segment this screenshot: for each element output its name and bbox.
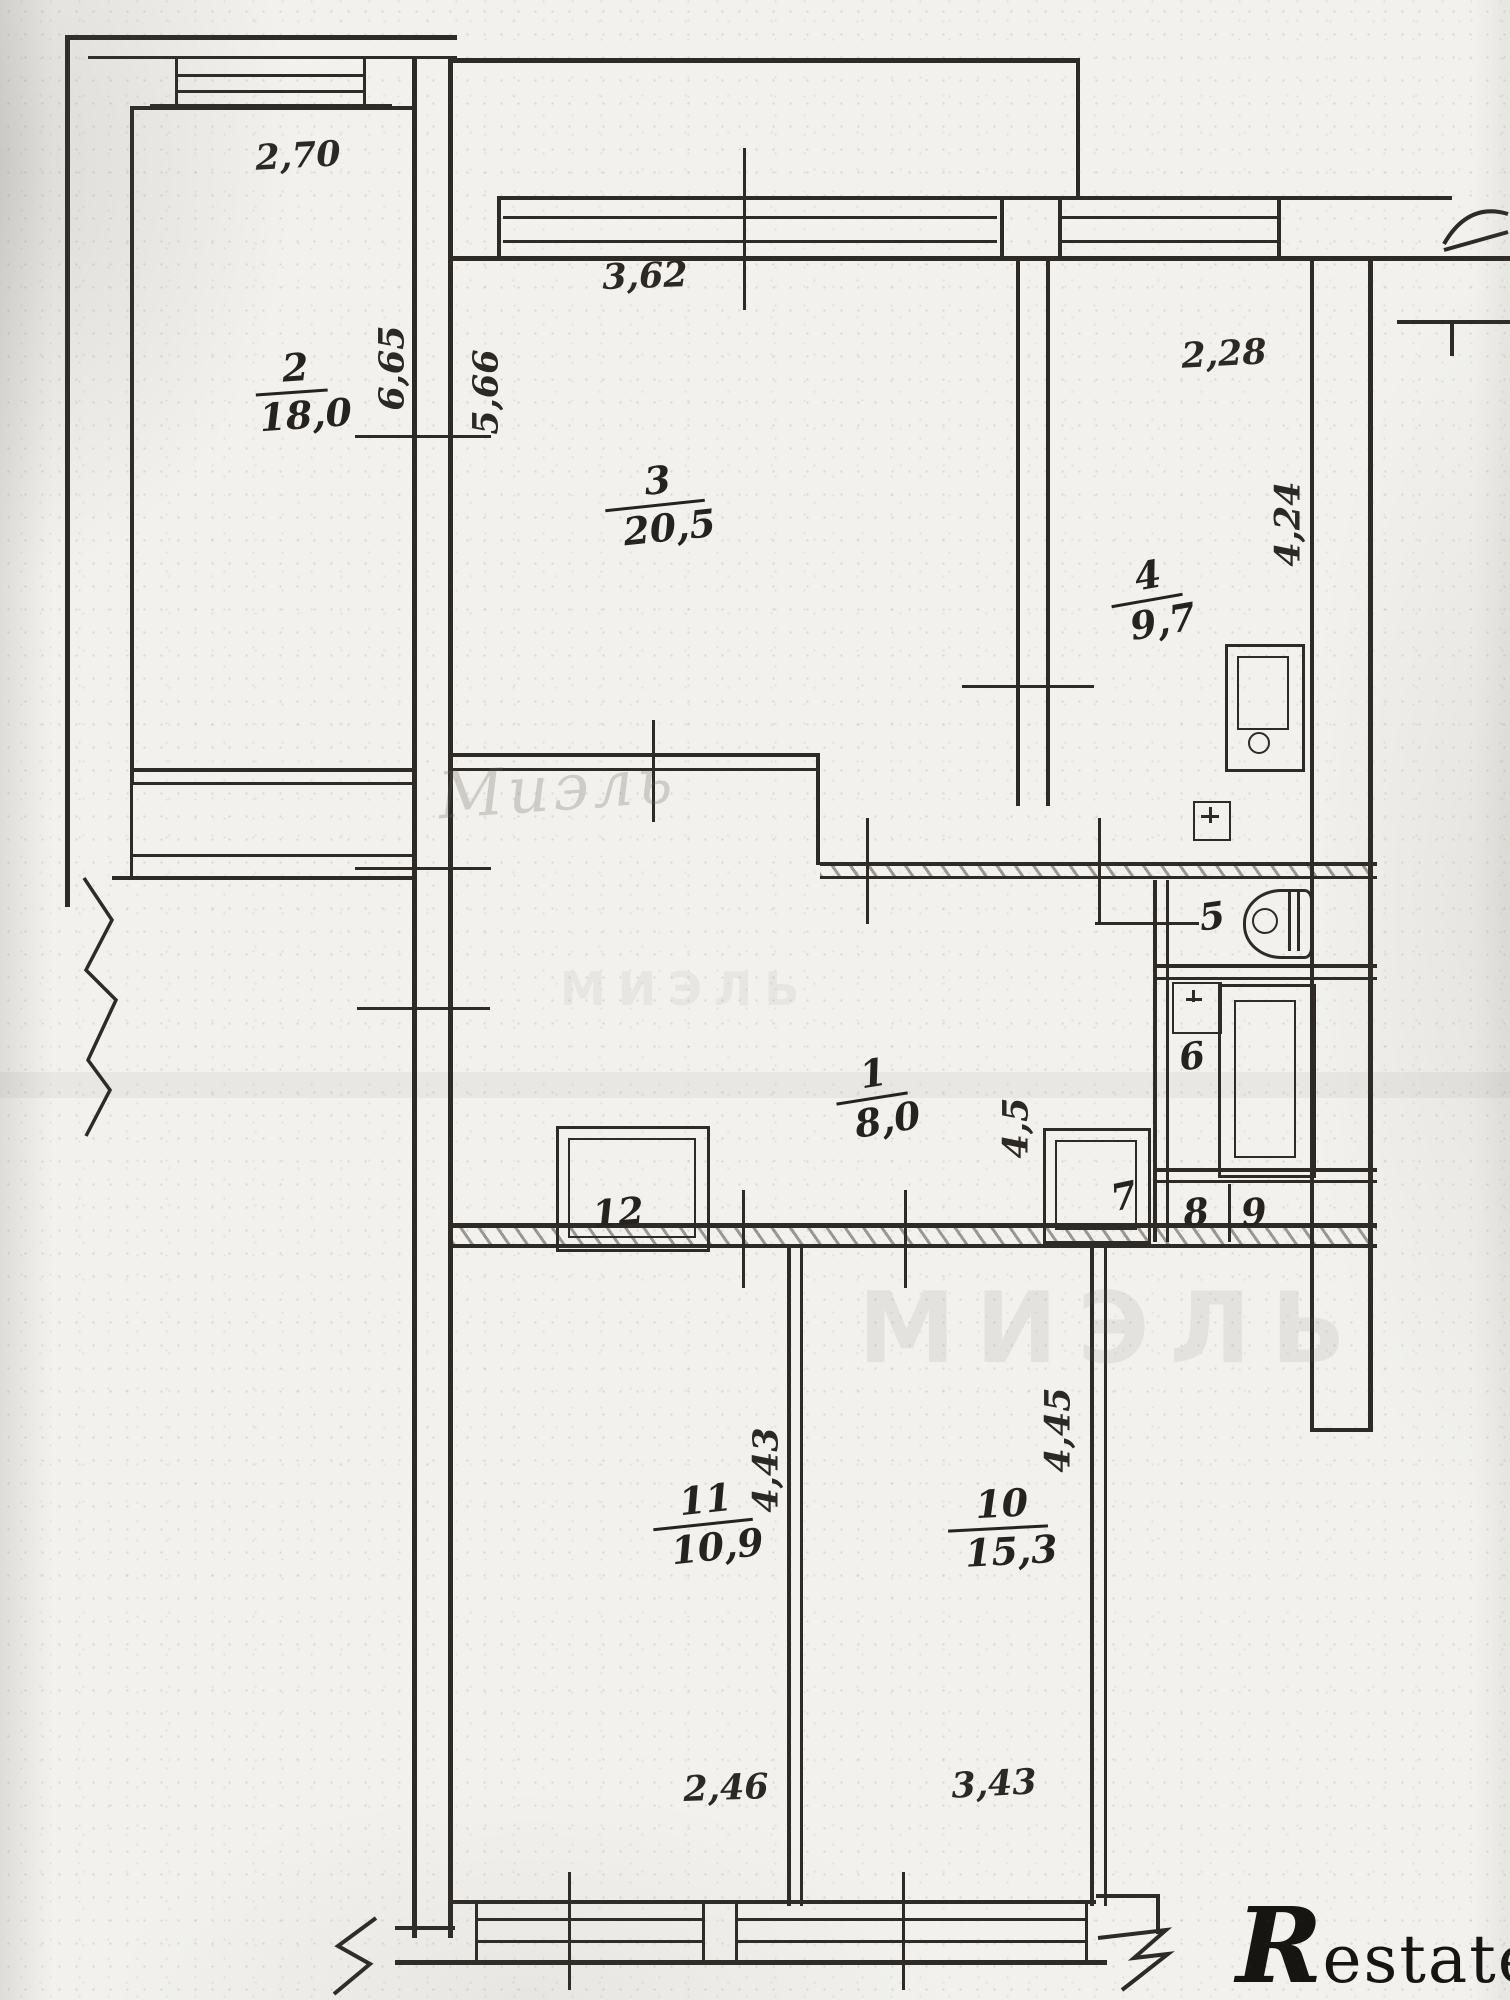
wall bbox=[1156, 1180, 1377, 1183]
door-axis-tick bbox=[1098, 818, 1101, 924]
door-axis-tick bbox=[902, 1872, 905, 1990]
dim-room10-length: 4,45 bbox=[1038, 1387, 1079, 1472]
window-frame bbox=[175, 56, 178, 108]
wall bbox=[130, 768, 414, 772]
entrance-arrow bbox=[1442, 192, 1510, 264]
wall bbox=[1166, 880, 1169, 1242]
wall bbox=[1076, 58, 1080, 198]
dim-room4-length: 4,24 bbox=[1268, 481, 1309, 566]
wall bbox=[787, 1248, 791, 1906]
watermark-block-small: МИЭЛЬ bbox=[560, 962, 811, 1016]
wall bbox=[1153, 880, 1157, 1242]
room-label-9: 9 bbox=[1239, 1189, 1269, 1235]
dim-room11-length: 4,43 bbox=[746, 1427, 787, 1512]
wall bbox=[1310, 260, 1314, 1432]
dim-room3-width: 3,62 bbox=[602, 254, 689, 298]
wall bbox=[497, 196, 1281, 200]
window-pier bbox=[1000, 196, 1004, 260]
dim-room10-width: 3,43 bbox=[950, 1761, 1037, 1806]
bathtub-icon bbox=[1234, 1000, 1296, 1158]
window-frame bbox=[363, 56, 366, 108]
window-glass-line bbox=[177, 74, 365, 77]
window-glass-line bbox=[735, 1918, 1085, 1921]
door-axis-tick bbox=[568, 1872, 571, 1990]
wall bbox=[130, 106, 414, 110]
door-axis-tick bbox=[743, 148, 746, 310]
dim-room11-width: 2,46 bbox=[683, 1766, 770, 1810]
room-area: 10,9 bbox=[666, 1522, 769, 1570]
room-number: 1 bbox=[835, 1049, 912, 1098]
window-frame bbox=[475, 1900, 478, 1962]
room-number: 11 bbox=[654, 1475, 757, 1523]
window-pier bbox=[1058, 196, 1062, 260]
room-label-3: 3 20,5 bbox=[601, 457, 709, 553]
dim-hall-side: 4,5 bbox=[996, 1098, 1037, 1159]
door-axis-tick bbox=[742, 1190, 745, 1288]
window-frame bbox=[702, 1900, 705, 1962]
watermark-block: МИЭЛЬ bbox=[858, 1272, 1366, 1386]
toilet-icon bbox=[1288, 891, 1291, 951]
room-area: 9,7 bbox=[1124, 597, 1202, 647]
break-line bbox=[76, 878, 142, 1136]
wall bbox=[130, 782, 414, 785]
watermark-script: Миэль bbox=[436, 744, 679, 834]
wall bbox=[65, 35, 70, 907]
door-axis-tick bbox=[1095, 922, 1199, 925]
break-line bbox=[328, 1916, 390, 1996]
wall bbox=[1046, 260, 1050, 806]
vent-box-icon bbox=[1193, 801, 1231, 841]
wall bbox=[452, 1244, 1377, 1248]
window-frame bbox=[1085, 1900, 1088, 1962]
wall bbox=[1281, 196, 1452, 200]
wall bbox=[395, 1926, 455, 1930]
wall bbox=[450, 58, 1080, 63]
room-area: 20,5 bbox=[618, 503, 721, 551]
window-frame bbox=[497, 196, 501, 260]
wall bbox=[1368, 260, 1373, 1432]
toilet-icon bbox=[1252, 908, 1278, 934]
door-axis-tick bbox=[355, 867, 491, 870]
room-label-1: 1 8,0 bbox=[830, 1050, 915, 1146]
window-glass-line bbox=[475, 1918, 705, 1921]
room-number: 10 bbox=[951, 1482, 1053, 1525]
wall bbox=[1156, 977, 1377, 980]
door-axis-tick bbox=[866, 818, 869, 924]
wall bbox=[1310, 1428, 1373, 1432]
restate-logo: Restate bbox=[1236, 1884, 1510, 2000]
window-glass-line bbox=[1062, 216, 1281, 219]
door-axis-tick bbox=[962, 685, 1094, 688]
wall bbox=[1016, 260, 1020, 806]
break-line bbox=[1096, 1928, 1170, 1992]
room-area: 15,3 bbox=[960, 1530, 1062, 1573]
wall bbox=[130, 106, 134, 782]
dim-room2-width: 2,70 bbox=[254, 133, 341, 178]
sink-icon bbox=[1192, 990, 1195, 1002]
room-label-11: 11 10,9 bbox=[649, 1476, 757, 1572]
dim-room3-length: 5,66 bbox=[466, 349, 507, 434]
restate-logo-initial: R bbox=[1236, 1884, 1322, 2000]
room-area: 18,0 bbox=[258, 393, 353, 437]
wall bbox=[800, 1248, 803, 1906]
stove-icon bbox=[1248, 732, 1270, 754]
wall bbox=[452, 1900, 1096, 1904]
vent-box-icon bbox=[1209, 807, 1212, 823]
wall bbox=[448, 58, 453, 1938]
window-glass-line bbox=[177, 90, 365, 93]
toilet-icon bbox=[1297, 891, 1300, 951]
window-glass-line bbox=[1062, 240, 1281, 243]
room-label-8: 8 bbox=[1181, 1189, 1211, 1235]
wall bbox=[1156, 964, 1377, 968]
wall bbox=[65, 35, 457, 40]
wall bbox=[112, 876, 414, 880]
room-area: 8,0 bbox=[849, 1095, 926, 1144]
sink-icon bbox=[1172, 982, 1222, 1034]
room-label-10: 10 15,3 bbox=[946, 1482, 1050, 1573]
stove-icon bbox=[1237, 656, 1289, 730]
restate-logo-rest: estate bbox=[1322, 1921, 1510, 1998]
room-label-6: 6 bbox=[1176, 1032, 1208, 1079]
door-axis-tick bbox=[357, 1007, 490, 1010]
window-frame bbox=[735, 1900, 738, 1962]
room-number: 2 bbox=[248, 346, 343, 390]
floorplan-page: 2 18,0 3 20,5 4 9,7 1 8,0 11 10,9 10 15,… bbox=[0, 0, 1510, 2000]
wall bbox=[412, 58, 417, 1938]
wall bbox=[130, 782, 133, 880]
window-glass-line bbox=[503, 240, 997, 243]
wall-hatch bbox=[452, 1228, 1377, 1244]
room-label-12: 12 bbox=[590, 1188, 645, 1236]
window-glass-line bbox=[503, 216, 997, 219]
room-label-4: 4 9,7 bbox=[1104, 551, 1190, 648]
dim-room2-length: 6,65 bbox=[372, 325, 413, 410]
wall bbox=[1450, 320, 1454, 356]
wall bbox=[395, 1960, 1107, 1965]
dim-room4-width: 2,28 bbox=[1180, 331, 1267, 376]
wall bbox=[130, 854, 414, 857]
door-axis-tick bbox=[355, 435, 491, 438]
room-number: 3 bbox=[606, 456, 709, 504]
wall bbox=[816, 753, 820, 865]
wall bbox=[1277, 196, 1281, 260]
room-label-2: 2 18,0 bbox=[243, 346, 341, 438]
window-glass-line bbox=[735, 1940, 1085, 1943]
room-label-5: 5 bbox=[1196, 892, 1228, 939]
wall bbox=[1096, 1894, 1160, 1898]
wall bbox=[88, 56, 457, 59]
window-glass-line bbox=[475, 1940, 705, 1943]
